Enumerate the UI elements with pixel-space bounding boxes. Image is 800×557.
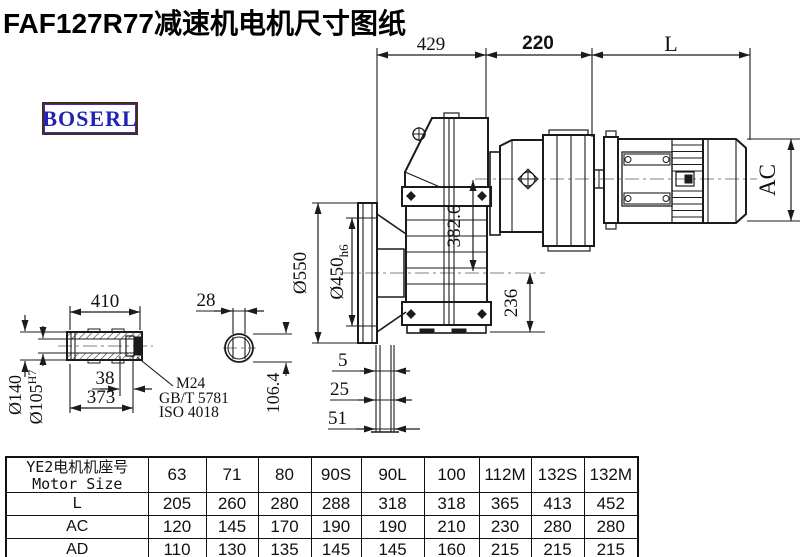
dimension-value: 145 [311,539,361,557]
dimension-value: 318 [424,493,479,516]
end-view-dimensions [196,308,292,376]
dim-L-label: L [664,31,677,56]
dim-373-label: 373 [87,387,116,408]
table-row: AC 120 145 170 190 190 210 230 280 280 [6,516,638,539]
dimension-value: 452 [584,493,638,516]
dim-429-label: 429 [417,34,446,55]
thread-note: M24 GB/T 5781 ISO 4018 [159,375,229,421]
motor-size-table: YE2电机机座号 Motor Size 63 71 80 90S 90L 100… [5,456,639,557]
output-flange-side-view [358,203,406,432]
dimension-value: 135 [258,539,311,557]
column-header: 132M [584,457,638,493]
column-header: 63 [148,457,206,493]
dimension-value: 110 [148,539,206,557]
dimension-value: 145 [206,516,258,539]
dimension-value: 260 [206,493,258,516]
dim-220-label: 220 [522,33,554,54]
row-label: AD [6,539,148,557]
dim-382-label: 382.6 [444,205,465,248]
dimension-value: 280 [531,516,584,539]
motor-size-header-en: Motor Size [7,476,148,492]
table-row: L 205 260 280 288 318 318 365 413 452 [6,493,638,516]
column-header: 90L [361,457,424,493]
dimension-value: 215 [479,539,531,557]
dimension-value: 413 [531,493,584,516]
dimension-value: 190 [311,516,361,539]
table-row: AD 110 130 135 145 145 160 215 215 215 [6,539,638,557]
motor-size-header: YE2电机机座号 Motor Size [6,457,148,493]
note-iso: ISO 4018 [159,404,219,421]
motor-size-header-cn: YE2电机机座号 [7,459,148,476]
dimension-value: 365 [479,493,531,516]
dim-5-label: 5 [338,350,348,371]
column-header: 132S [531,457,584,493]
dim-dia140-label: Ø140 [5,375,25,415]
dim-AC-label: AC [755,164,780,196]
column-header: 90S [311,457,361,493]
dimension-value: 280 [258,493,311,516]
column-header: 100 [424,457,479,493]
dim-25-label: 25 [330,379,349,400]
dim-38-label: 38 [96,368,115,389]
motor-side-view [594,131,746,229]
row-label: L [6,493,148,516]
dimension-value: 120 [148,516,206,539]
dimension-value: 145 [361,539,424,557]
dimension-value: 215 [531,539,584,557]
column-header: 80 [258,457,311,493]
dim-dia450-label: Ø450h6 [327,244,351,300]
dim-dia550-label: Ø550 [290,252,311,294]
dimension-value: 215 [584,539,638,557]
dimension-value: 210 [424,516,479,539]
dimension-value: 190 [361,516,424,539]
dim-236-label: 236 [501,289,522,318]
dim-dia105-label: Ø105H7 [25,370,46,425]
dimension-value: 288 [311,493,361,516]
dimension-value: 170 [258,516,311,539]
dimension-value: 205 [148,493,206,516]
dimension-value: 318 [361,493,424,516]
motor-adapter [490,130,594,251]
dim-410-label: 410 [91,291,120,312]
column-header: 71 [206,457,258,493]
dimension-value: 160 [424,539,479,557]
dim-28-label: 28 [197,290,216,311]
dimension-value: 130 [206,539,258,557]
drawing-page: FAF127R77减速机电机尺寸图纸 BOSERL [0,0,800,557]
dim-51-label: 51 [328,408,347,429]
dimension-value: 230 [479,516,531,539]
row-label: AC [6,516,148,539]
dim-106-label: 106.4 [263,373,283,414]
column-header: 112M [479,457,531,493]
table-header-row: YE2电机机座号 Motor Size 63 71 80 90S 90L 100… [6,457,638,493]
dimension-value: 280 [584,516,638,539]
